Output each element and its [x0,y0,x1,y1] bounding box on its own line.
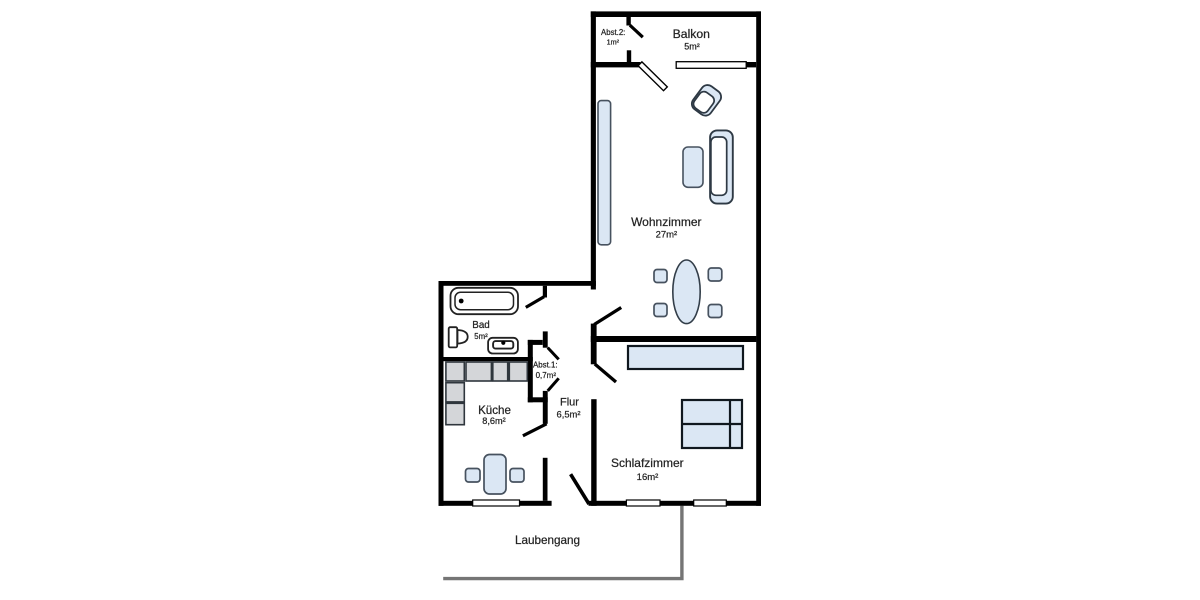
svg-text:5m²: 5m² [684,41,700,51]
svg-text:6,5m²: 6,5m² [557,408,581,419]
svg-text:5m²: 5m² [474,332,488,341]
svg-text:Laubengang: Laubengang [515,534,580,547]
svg-text:Balkon: Balkon [673,27,710,41]
svg-text:27m²: 27m² [656,229,678,240]
svg-text:0,7m²: 0,7m² [536,371,557,380]
svg-text:Abst.1:: Abst.1: [533,361,558,370]
svg-text:Abst.2:: Abst.2: [601,28,625,37]
svg-text:1m²: 1m² [607,38,620,47]
svg-text:Schlafzimmer: Schlafzimmer [611,456,684,470]
svg-text:8,6m²: 8,6m² [482,416,506,426]
svg-text:Wohnzimmer: Wohnzimmer [631,215,701,229]
svg-text:Bad: Bad [472,320,489,331]
svg-text:Flur: Flur [560,397,579,409]
svg-text:16m²: 16m² [637,472,659,483]
